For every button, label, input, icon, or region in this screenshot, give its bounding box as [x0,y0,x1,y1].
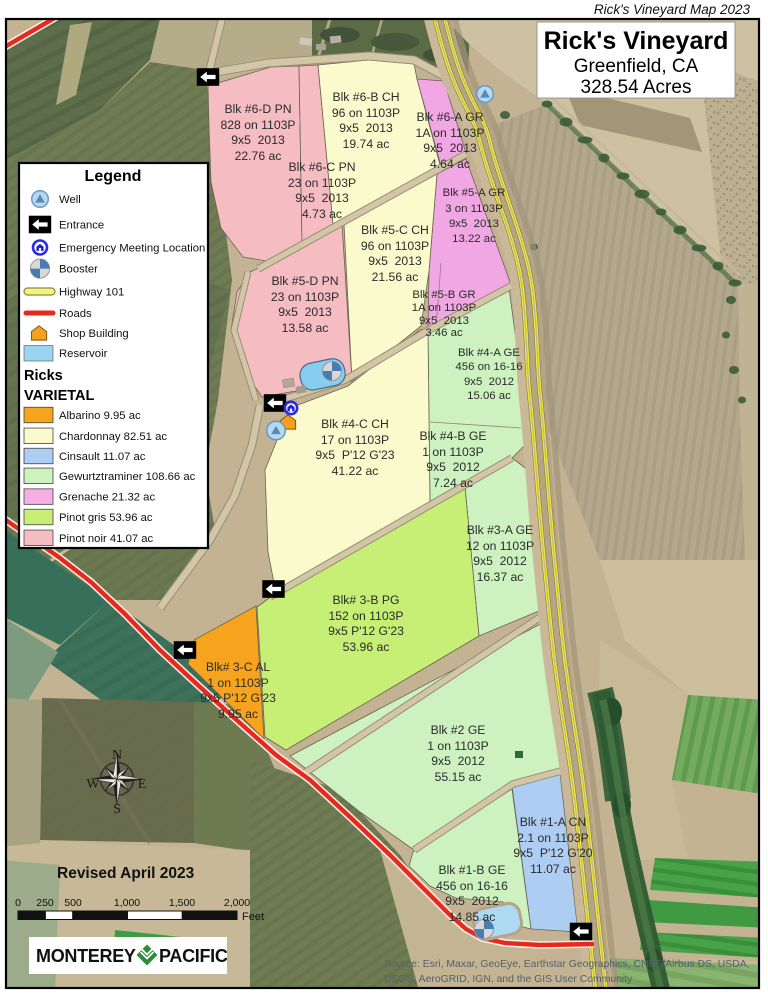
svg-text:Legend: Legend [85,168,142,185]
svg-text:Rick's Vineyard: Rick's Vineyard [544,27,729,55]
svg-text:Reservoir: Reservoir [59,348,108,360]
svg-text:Revised April 2023: Revised April 2023 [57,865,195,882]
svg-text:USGS, AeroGRID, IGN, and the G: USGS, AeroGRID, IGN, and the GIS User Co… [384,974,633,985]
svg-text:1,000: 1,000 [114,897,140,909]
svg-text:E: E [138,777,147,792]
svg-text:Grenache 21.32 ac: Grenache 21.32 ac [59,492,155,504]
svg-text:Rick's Vineyard Map 2023: Rick's Vineyard Map 2023 [594,2,751,17]
svg-text:S: S [113,802,121,817]
svg-text:2,000: 2,000 [224,897,250,909]
svg-text:Pinot noir 41.07 ac: Pinot noir 41.07 ac [59,533,154,545]
svg-text:Source: Esri, Maxar, GeoEye, E: Source: Esri, Maxar, GeoEye, Earthstar G… [384,959,750,970]
svg-text:Ricks: Ricks [24,368,63,384]
svg-text:Blk #2 GE1 on 1103P9x5 201255: Blk #2 GE1 on 1103P9x5 201255.15 ac [427,723,488,784]
svg-text:328.54 Acres: 328.54 Acres [581,77,692,98]
svg-text:Greenfield, CA: Greenfield, CA [574,56,699,77]
svg-text:Cinsault 11.07 ac: Cinsault 11.07 ac [59,451,146,463]
svg-text:W: W [86,777,100,792]
svg-text:0: 0 [15,897,21,909]
svg-text:1,500: 1,500 [169,897,195,909]
svg-text:VARIETAL: VARIETAL [24,388,94,404]
svg-text:Gewurtztraminer 108.66 ac: Gewurtztraminer 108.66 ac [59,471,196,483]
svg-text:Albarino 9.95 ac: Albarino 9.95 ac [59,410,141,422]
svg-text:N: N [112,748,122,763]
svg-text:Roads: Roads [59,308,92,320]
svg-text:Well: Well [59,194,81,206]
svg-text:250: 250 [36,897,54,909]
svg-text:Chardonnay 82.51 ac: Chardonnay 82.51 ac [59,431,167,443]
svg-text:Highway 101: Highway 101 [59,287,124,299]
svg-text:Feet: Feet [242,911,264,923]
svg-text:Booster: Booster [59,264,98,276]
svg-text:MONTEREY: MONTEREY [36,946,136,966]
svg-text:Emergency Meeting Location: Emergency Meeting Location [59,243,205,255]
svg-text:Entrance: Entrance [59,220,104,232]
svg-text:PACIFIC: PACIFIC [159,946,228,966]
svg-text:Shop Building: Shop Building [59,328,129,340]
svg-text:500: 500 [64,897,82,909]
svg-text:Pinot gris 53.96 ac: Pinot gris 53.96 ac [59,512,153,524]
